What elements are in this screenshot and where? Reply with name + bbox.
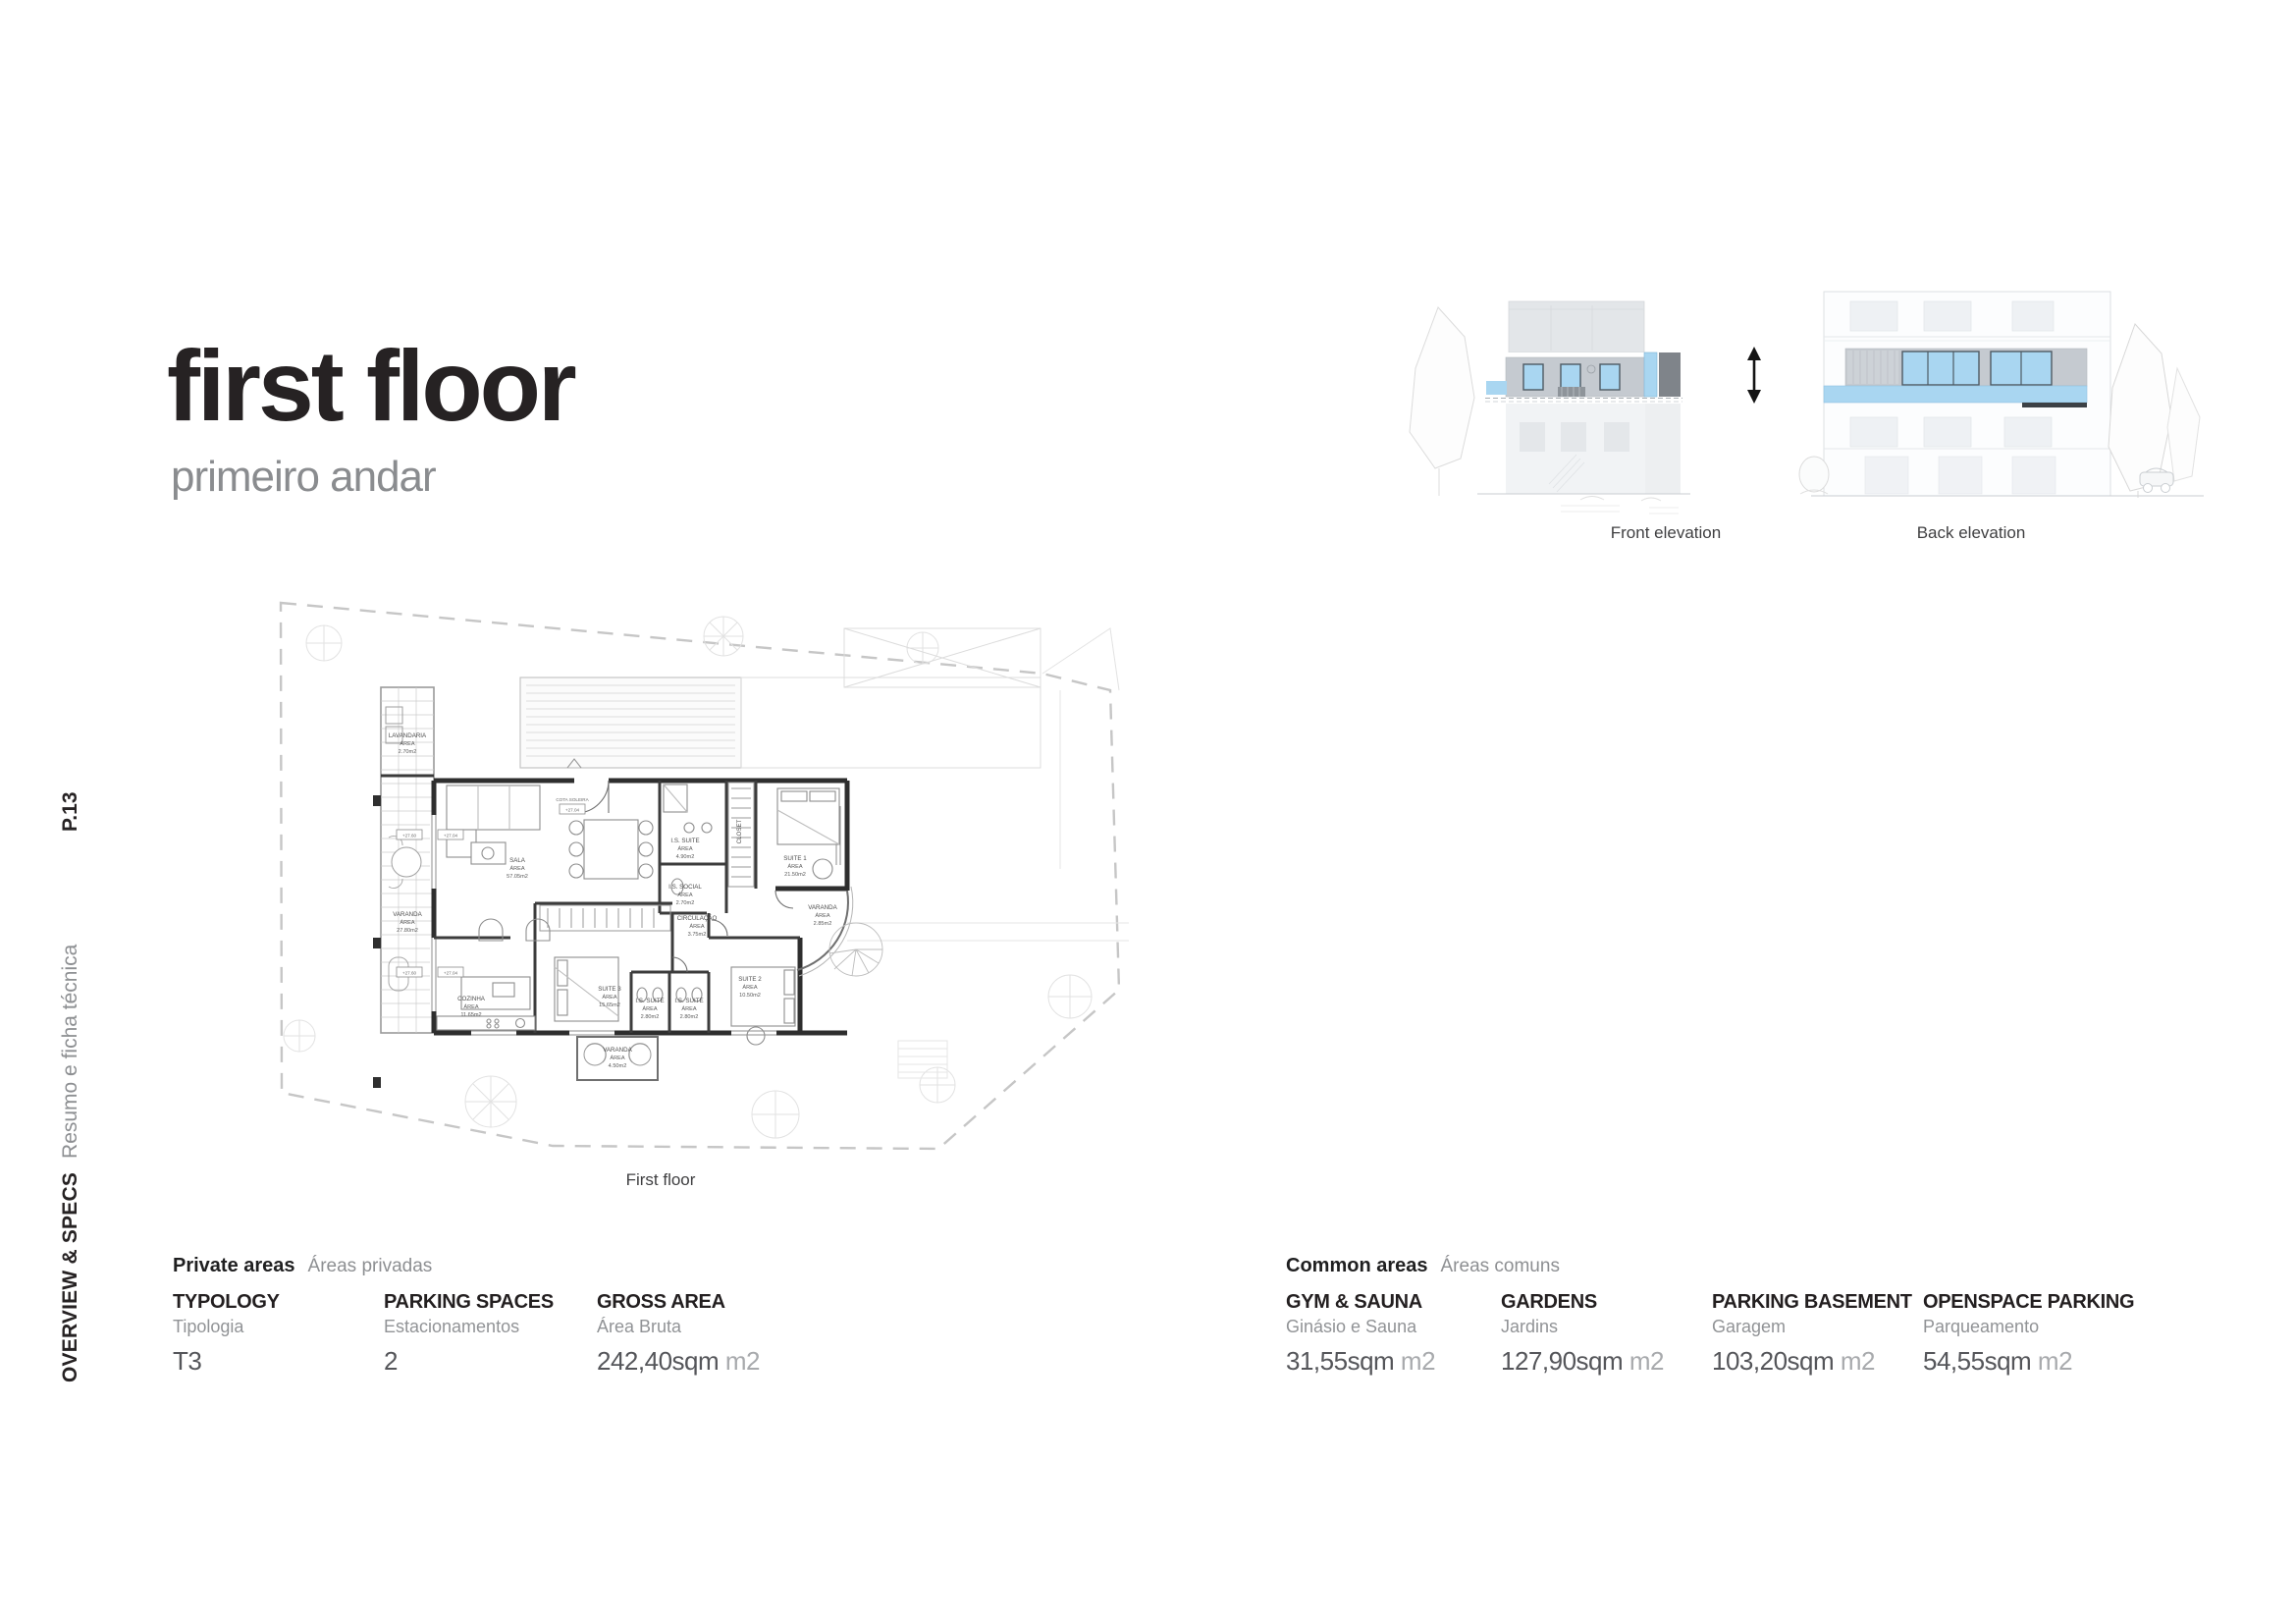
spec-value: 242,40sqm m2 [597,1348,760,1374]
svg-text:ÁREA: ÁREA [677,892,693,898]
spec-openspace-parking: OPENSPACE PARKING Parqueamento 54,55sqm … [1923,1292,2134,1374]
svg-text:ÁREA: ÁREA [610,1055,625,1061]
private-areas-title-pt: Áreas privadas [308,1256,433,1276]
svg-text:15.65m2: 15.65m2 [599,1002,620,1008]
svg-text:ÁREA: ÁREA [681,1005,697,1012]
room-label-is-social: I.S. SOCIAL ÁREA 2.70m2 [668,884,702,906]
spec-label-pt: Jardins [1501,1318,1664,1335]
sidebar-section: OVERVIEW & SPECSResumo e ficha técnica [59,945,82,1382]
svg-text:I.S. SUITE: I.S. SUITE [674,998,703,1004]
spec-gardens: GARDENS Jardins 127,90sqm m2 [1501,1292,1664,1374]
svg-text:21.50m2: 21.50m2 [784,872,806,878]
level-marker-text: +27.60 [402,834,417,839]
threshold-label: COTA SOLEIRA [556,797,589,802]
svg-text:ÁREA: ÁREA [509,865,525,872]
page-title: first floor [167,336,574,436]
height-arrow-icon [1747,347,1761,404]
curved-balcony [797,887,882,976]
spec-value: 31,55sqm m2 [1286,1348,1435,1374]
svg-text:3.75m2: 3.75m2 [688,932,707,938]
spec-gym-sauna: GYM & SAUNA Ginásio e Sauna 31,55sqm m2 [1286,1292,1435,1374]
svg-text:ÁREA: ÁREA [677,845,693,852]
back-elevation-drawing [1799,292,2204,498]
level-marker-text: +27.04 [444,834,458,839]
svg-text:ÁREA: ÁREA [400,740,415,747]
spec-parking-basement: PARKING BASEMENT Garagem 103,20sqm m2 [1712,1292,1912,1374]
spec-unit: m2 [2038,1346,2072,1376]
spec-value: 103,20sqm m2 [1712,1348,1912,1374]
spec-value: 127,90sqm m2 [1501,1348,1664,1374]
svg-text:CLOSET: CLOSET [736,819,743,843]
exterior-deck [520,628,1041,768]
svg-text:ÁREA: ÁREA [742,984,758,991]
spec-unit: m2 [1629,1346,1664,1376]
room-label-suite-1: SUITE 1 ÁREA 21.50m2 [783,855,807,878]
spec-unit: m2 [725,1346,760,1376]
spec-label-en: GROSS AREA [597,1292,760,1312]
front-elevation-drawing [1410,301,1690,514]
room-label-is-suite-b: I.S. SUITE ÁREA 2.80m2 [674,998,703,1020]
sidebar-section-pt: Resumo e ficha técnica [59,945,81,1159]
page-subtitle: primeiro andar [171,454,436,501]
floor-plan-drawing: +27.60 +27.04 +27.60 +27.04 COTA SOLEIRA… [245,574,1129,1213]
svg-text:COZINHA: COZINHA [457,996,486,1002]
svg-text:I.S. SOCIAL: I.S. SOCIAL [668,884,702,891]
svg-text:11.65m2: 11.65m2 [460,1012,481,1018]
spec-value: 2 [384,1348,554,1374]
spec-label-pt: Parqueamento [1923,1318,2134,1335]
room-label-circulacao: CIRCULAÇÃO ÁREA 3.75m2 [677,915,718,938]
svg-text:VARANDA: VARANDA [808,904,837,911]
spec-gross-area: GROSS AREA Área Bruta 242,40sqm m2 [597,1292,760,1374]
svg-text:I.S. SUITE: I.S. SUITE [670,838,699,844]
spec-parking-spaces: PARKING SPACES Estacionamentos 2 [384,1292,554,1374]
svg-text:4.90m2: 4.90m2 [676,854,695,860]
spec-label-pt: Ginásio e Sauna [1286,1318,1435,1335]
svg-text:SUITE 2: SUITE 2 [738,976,762,983]
common-areas-title-en: Common areas [1286,1255,1428,1276]
svg-text:VARANDA: VARANDA [393,911,422,918]
sidebar-section-en: OVERVIEW & SPECS [59,1172,81,1382]
svg-text:2.85m2: 2.85m2 [814,921,832,927]
spec-label-pt: Área Bruta [597,1318,760,1335]
level-marker-text: +27.60 [402,971,417,976]
spec-label-pt: Estacionamentos [384,1318,554,1335]
page-number: P.13 [59,792,82,833]
spec-unit: m2 [1401,1346,1435,1376]
svg-text:57.05m2: 57.05m2 [507,874,528,880]
back-elevation-caption: Back elevation [1893,523,2050,543]
svg-text:ÁREA: ÁREA [642,1005,658,1012]
level-marker-text: +27.04 [444,971,458,976]
room-label-is-suite-a: I.S. SUITE ÁREA 2.80m2 [635,998,664,1020]
floor-plan-caption: First floor [582,1170,739,1190]
svg-text:10.50m2: 10.50m2 [739,993,761,999]
svg-text:ÁREA: ÁREA [463,1003,479,1010]
svg-text:ÁREA: ÁREA [602,994,617,1001]
svg-text:SUITE 3: SUITE 3 [598,986,621,993]
furniture [437,785,839,1045]
common-areas-title: Common areasÁreas comuns [1286,1256,1560,1275]
common-areas-title-pt: Áreas comuns [1441,1256,1560,1276]
elevation-drawings [1404,250,2218,565]
svg-text:ÁREA: ÁREA [815,912,830,919]
svg-text:LAVANDARIA: LAVANDARIA [389,732,427,739]
svg-text:27.80m2: 27.80m2 [397,928,418,934]
svg-text:I.S. SUITE: I.S. SUITE [635,998,664,1004]
spec-unit: m2 [1841,1346,1875,1376]
private-areas-title: Private areasÁreas privadas [173,1256,432,1275]
car-icon [2140,468,2173,493]
spec-label-pt: Tipologia [173,1318,280,1335]
svg-text:2.80m2: 2.80m2 [680,1014,699,1020]
varanda-strip [373,687,434,1088]
spec-value: T3 [173,1348,280,1374]
svg-text:4.50m2: 4.50m2 [609,1063,627,1069]
context-lines [847,690,1129,1078]
spec-label-pt: Garagem [1712,1318,1912,1335]
spec-label-en: PARKING BASEMENT [1712,1292,1912,1312]
room-label-varanda-right: VARANDA ÁREA 2.85m2 [808,904,837,927]
svg-text:ÁREA: ÁREA [787,863,803,870]
svg-text:SUITE 1: SUITE 1 [783,855,807,862]
room-label-sala: SALA ÁREA 57.05m2 [507,857,528,880]
spec-typology: TYPOLOGY Tipologia T3 [173,1292,280,1374]
room-label-closet: CLOSET [736,819,743,843]
room-label-is-suite-top: I.S. SUITE ÁREA 4.90m2 [670,838,699,860]
private-areas-title-en: Private areas [173,1255,295,1276]
svg-text:2.70m2: 2.70m2 [676,900,695,906]
svg-text:VARANDA: VARANDA [603,1047,632,1054]
spec-label-en: TYPOLOGY [173,1292,280,1312]
svg-text:SALA: SALA [509,857,526,864]
spec-label-en: PARKING SPACES [384,1292,554,1312]
spec-label-en: GARDENS [1501,1292,1664,1312]
svg-text:CIRCULAÇÃO: CIRCULAÇÃO [677,915,718,922]
spec-value: 54,55sqm m2 [1923,1348,2134,1374]
spec-label-en: OPENSPACE PARKING [1923,1292,2134,1312]
svg-text:2.70m2: 2.70m2 [399,749,417,755]
front-elevation-caption: Front elevation [1587,523,1744,543]
threshold-value: +27.04 [565,808,580,813]
spec-label-en: GYM & SAUNA [1286,1292,1435,1312]
svg-text:ÁREA: ÁREA [689,923,705,930]
svg-text:2.80m2: 2.80m2 [641,1014,660,1020]
svg-text:ÁREA: ÁREA [400,919,415,926]
